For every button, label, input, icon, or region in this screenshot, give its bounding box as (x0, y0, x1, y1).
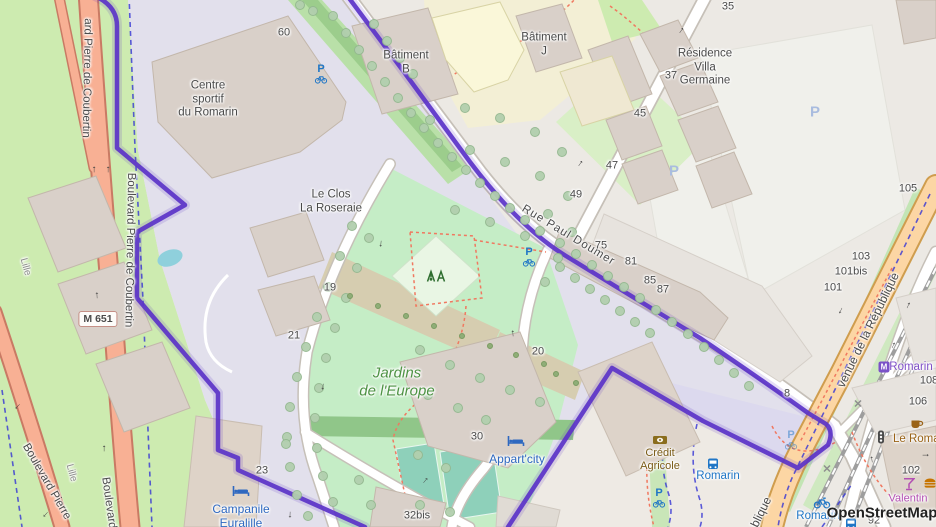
tree-icon (530, 127, 540, 137)
place-name-label: Jardinsde l'Europe (359, 364, 434, 399)
tree-icon (328, 11, 338, 21)
bicycle-parking-icon: P (653, 488, 666, 508)
playground-icon (426, 269, 447, 284)
shrub-icon (513, 352, 519, 358)
tree-icon (667, 317, 677, 327)
house-number: 45 (634, 108, 646, 121)
tree-icon (475, 373, 485, 383)
house-number: 21 (288, 330, 300, 343)
tree-icon (630, 317, 640, 327)
oneway-arrow-icon: ↑ (420, 476, 430, 487)
oneway-arrow-icon: ↑ (920, 453, 930, 458)
bicycle-parking-icon: P (315, 64, 328, 84)
tree-icon (292, 372, 302, 382)
road-name-label: Lille (17, 257, 33, 277)
tree-icon (481, 415, 491, 425)
place-name-label: RésidenceVillaGermaine (678, 48, 732, 89)
parking-icon: P (669, 164, 679, 179)
oneway-arrow-icon: ↑ (510, 329, 516, 339)
tree-icon (490, 191, 500, 201)
tree-icon (460, 103, 470, 113)
tree-icon (285, 402, 295, 412)
tree-icon (352, 263, 362, 273)
tree-icon (714, 355, 724, 365)
tree-icon (310, 413, 320, 423)
traffic-light-icon (878, 430, 885, 444)
road-name-label: Lille (63, 463, 79, 483)
tree-icon (328, 497, 338, 507)
map-overlay: ↑↑↑↑↑↑↑↑↑↑↑↑↑↑↑↑↑↑Rue Paul Doumervenue d… (0, 0, 936, 527)
tree-icon (555, 262, 565, 272)
road-name-label: blique (748, 495, 775, 527)
tree-icon (380, 77, 390, 87)
tree-icon (453, 403, 463, 413)
level-crossing-icon: ✕ (853, 400, 862, 411)
tree-icon (364, 233, 374, 243)
tree-icon (281, 439, 291, 449)
tree-icon (335, 251, 345, 261)
tree-icon (292, 490, 302, 500)
tree-icon (308, 6, 318, 16)
tree-icon (603, 271, 613, 281)
house-number: 101bis (835, 266, 867, 279)
house-number: 87 (657, 284, 669, 297)
shrub-icon (487, 343, 493, 349)
tree-icon (619, 282, 629, 292)
tree-icon (635, 293, 645, 303)
oneway-arrow-icon: ↑ (41, 509, 51, 520)
hotel-icon (507, 435, 525, 447)
tree-icon (445, 360, 455, 370)
tree-icon (413, 450, 423, 460)
tree-icon (535, 397, 545, 407)
poi-name-label: Appart'city (489, 452, 545, 466)
tree-icon (354, 45, 364, 55)
house-number: 106 (909, 396, 927, 409)
oneway-arrow-icon: ↑ (94, 291, 100, 301)
house-number: 75 (595, 240, 607, 253)
house-number: 103 (852, 251, 870, 264)
tree-icon (699, 342, 709, 352)
tree-icon (303, 511, 313, 521)
shrub-icon (431, 323, 437, 329)
tree-icon (500, 157, 510, 167)
oneway-arrow-icon: ↑ (320, 381, 326, 392)
map-canvas[interactable]: ↑↑↑↑↑↑↑↑↑↑↑↑↑↑↑↑↑↑Rue Paul Doumervenue d… (0, 0, 936, 527)
oneway-arrow-icon: ↑ (378, 238, 384, 248)
poi-name-label: CampanileEuralille (212, 502, 269, 527)
tree-icon (433, 138, 443, 148)
metro-icon: M (878, 361, 890, 373)
tree-icon (312, 443, 322, 453)
tree-icon (729, 368, 739, 378)
house-number: 102 (902, 465, 920, 478)
house-number: 23 (256, 465, 268, 478)
parking-icon: P (810, 105, 820, 120)
fast-food-icon (924, 478, 936, 488)
tree-icon (312, 312, 322, 322)
road-name-label: Boulevard Pierre de Coubertin (121, 173, 137, 328)
tree-icon (415, 500, 425, 510)
tree-icon (505, 385, 515, 395)
tree-icon (301, 342, 311, 352)
bar-icon (903, 478, 915, 491)
place-name-label: BâtimentB (383, 49, 428, 76)
tree-icon (615, 306, 625, 316)
tree-icon (587, 260, 597, 270)
tree-icon (505, 203, 515, 213)
shrub-icon (459, 333, 465, 339)
house-number: 49 (570, 189, 582, 202)
tree-icon (600, 295, 610, 305)
tree-icon (285, 462, 295, 472)
tree-icon (415, 345, 425, 355)
tree-icon (354, 475, 364, 485)
oneway-arrow-icon: ↑ (92, 165, 97, 175)
tree-icon (366, 500, 376, 510)
tree-icon (520, 231, 530, 241)
oneway-arrow-icon: ↑ (889, 340, 898, 351)
house-number: 60 (278, 27, 290, 40)
house-number: 19 (324, 282, 336, 295)
bus-stop-icon (708, 458, 719, 470)
cafe-icon (910, 418, 924, 430)
poi-name-label: Romarin (696, 470, 739, 484)
oneway-arrow-icon: ↑ (904, 300, 913, 311)
tree-icon (447, 152, 457, 162)
shrub-icon (553, 371, 559, 377)
shrub-icon (403, 313, 409, 319)
tree-icon (651, 305, 661, 315)
hotel-icon (232, 485, 250, 497)
tree-icon (295, 0, 305, 10)
tree-icon (369, 19, 379, 29)
shrub-icon (375, 303, 381, 309)
tree-icon (321, 353, 331, 363)
road-name-label: ard Pierre de Coubertin (78, 18, 94, 138)
tree-icon (540, 277, 550, 287)
tree-icon (450, 205, 460, 215)
poi-name-label: Le Romar (893, 433, 936, 447)
house-number: 37 (665, 70, 677, 83)
tree-icon (347, 221, 357, 231)
house-number: 32bis (404, 510, 430, 523)
tree-icon (645, 328, 655, 338)
house-number: 47 (606, 160, 618, 173)
tree-icon (461, 165, 471, 175)
tree-icon (406, 108, 416, 118)
tree-icon (553, 253, 563, 263)
oneway-arrow-icon: ↑ (287, 509, 292, 519)
house-number: 35 (722, 1, 734, 14)
oneway-arrow-icon: ↑ (869, 455, 875, 466)
tree-icon (330, 323, 340, 333)
house-number: 105 (899, 183, 917, 196)
bicycle-parking-icon: P (785, 430, 798, 450)
tree-icon (425, 115, 435, 125)
tree-icon (744, 381, 754, 391)
house-number: 8 (784, 388, 790, 401)
tree-icon (367, 61, 377, 71)
level-crossing-icon: ✕ (822, 465, 831, 476)
house-number: 20 (532, 346, 544, 359)
shrub-icon (541, 361, 547, 367)
bank-icon (653, 435, 668, 445)
tree-icon (445, 507, 455, 517)
road-ref-badge: M 651 (78, 311, 117, 327)
house-number: 85 (644, 275, 656, 288)
tree-icon (683, 329, 693, 339)
oneway-arrow-icon: ↑ (106, 165, 111, 175)
place-name-label: Centresportifdu Romarin (178, 80, 237, 121)
tree-icon (465, 145, 475, 155)
tree-icon (535, 171, 545, 181)
poi-name-label: Romarin (889, 361, 932, 375)
tree-icon (382, 36, 392, 46)
tree-icon (485, 217, 495, 227)
tree-icon (318, 471, 328, 481)
house-number: 101 (824, 282, 842, 295)
house-number: 81 (625, 256, 637, 269)
attribution[interactable]: OpenStreetMap (827, 505, 936, 522)
bicycle-parking-icon: P (523, 247, 536, 267)
house-number: 30 (471, 431, 483, 444)
tree-icon (570, 273, 580, 283)
place-name-label: Le ClosLa Roseraie (300, 188, 362, 215)
poi-name-label: CréditAgricole (640, 447, 680, 473)
oneway-arrow-icon: ↑ (102, 444, 107, 454)
tree-icon (557, 147, 567, 157)
tree-icon (495, 113, 505, 123)
oneway-arrow-icon: ↑ (575, 158, 585, 169)
place-name-label: BâtimentJ (521, 31, 566, 58)
svg-text:M: M (881, 363, 888, 372)
house-number: 108 (920, 375, 936, 388)
road-name-label: Boulevard (98, 476, 119, 527)
oneway-arrow-icon: ↑ (837, 304, 846, 315)
oneway-arrow-icon: ↑ (13, 401, 23, 412)
tree-icon (475, 178, 485, 188)
tree-icon (341, 28, 351, 38)
shrub-icon (573, 380, 579, 386)
tree-icon (585, 284, 595, 294)
tree-icon (393, 93, 403, 103)
tree-icon (441, 463, 451, 473)
oneway-arrow-icon: ↑ (676, 25, 686, 36)
shrub-icon (347, 293, 353, 299)
